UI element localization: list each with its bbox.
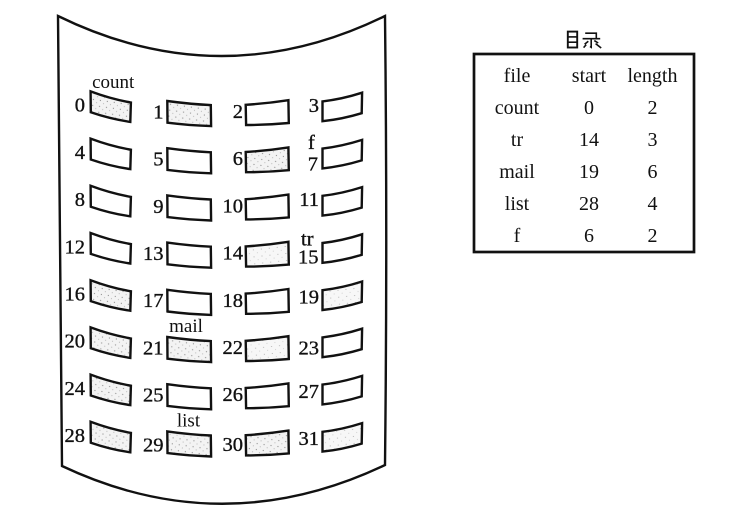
svg-text:4: 4 — [75, 142, 85, 164]
svg-text:19: 19 — [579, 161, 599, 183]
svg-text:tr: tr — [511, 129, 524, 151]
svg-text:28: 28 — [65, 425, 86, 447]
svg-text:17: 17 — [143, 290, 164, 312]
svg-text:25: 25 — [143, 385, 164, 407]
svg-text:start: start — [572, 65, 607, 87]
svg-text:mail: mail — [169, 316, 203, 337]
svg-text:15: 15 — [298, 246, 319, 268]
svg-text:2: 2 — [648, 97, 658, 119]
svg-text:12: 12 — [65, 236, 86, 258]
svg-text:14: 14 — [223, 243, 244, 265]
svg-text:0: 0 — [584, 97, 594, 119]
svg-text:8: 8 — [75, 189, 85, 211]
svg-text:30: 30 — [223, 434, 244, 456]
svg-text:mail: mail — [499, 161, 535, 183]
svg-text:9: 9 — [153, 196, 163, 218]
svg-text:list: list — [505, 193, 530, 215]
svg-text:6: 6 — [584, 225, 594, 247]
svg-text:18: 18 — [223, 290, 244, 312]
svg-text:14: 14 — [579, 129, 599, 151]
svg-text:13: 13 — [143, 243, 164, 265]
svg-text:24: 24 — [65, 378, 86, 400]
svg-text:2: 2 — [233, 101, 243, 123]
svg-text:list: list — [177, 411, 201, 432]
svg-text:1: 1 — [153, 101, 163, 123]
svg-text:31: 31 — [299, 428, 320, 450]
svg-text:5: 5 — [153, 149, 163, 171]
svg-text:23: 23 — [299, 337, 320, 359]
svg-text:28: 28 — [579, 193, 599, 215]
svg-text:count: count — [495, 97, 540, 119]
svg-text:length: length — [628, 65, 678, 87]
svg-text:f: f — [514, 225, 521, 247]
svg-text:21: 21 — [143, 337, 164, 359]
svg-text:2: 2 — [648, 225, 658, 247]
svg-text:27: 27 — [299, 381, 320, 403]
svg-text:7: 7 — [308, 154, 318, 176]
svg-text:6: 6 — [648, 161, 658, 183]
svg-text:26: 26 — [223, 384, 244, 406]
svg-text:22: 22 — [223, 337, 244, 359]
svg-text:0: 0 — [75, 95, 85, 117]
svg-text:f: f — [308, 132, 315, 154]
svg-text:3: 3 — [648, 129, 658, 151]
svg-text:count: count — [92, 72, 135, 93]
svg-text:16: 16 — [65, 284, 86, 306]
svg-text:20: 20 — [65, 331, 86, 353]
svg-text:19: 19 — [299, 287, 320, 309]
svg-text:11: 11 — [299, 189, 319, 211]
svg-text:29: 29 — [143, 434, 164, 456]
svg-text:4: 4 — [648, 193, 658, 215]
svg-text:6: 6 — [233, 148, 243, 170]
svg-text:10: 10 — [223, 195, 244, 217]
svg-text:3: 3 — [309, 95, 319, 117]
svg-text:file: file — [504, 65, 531, 87]
